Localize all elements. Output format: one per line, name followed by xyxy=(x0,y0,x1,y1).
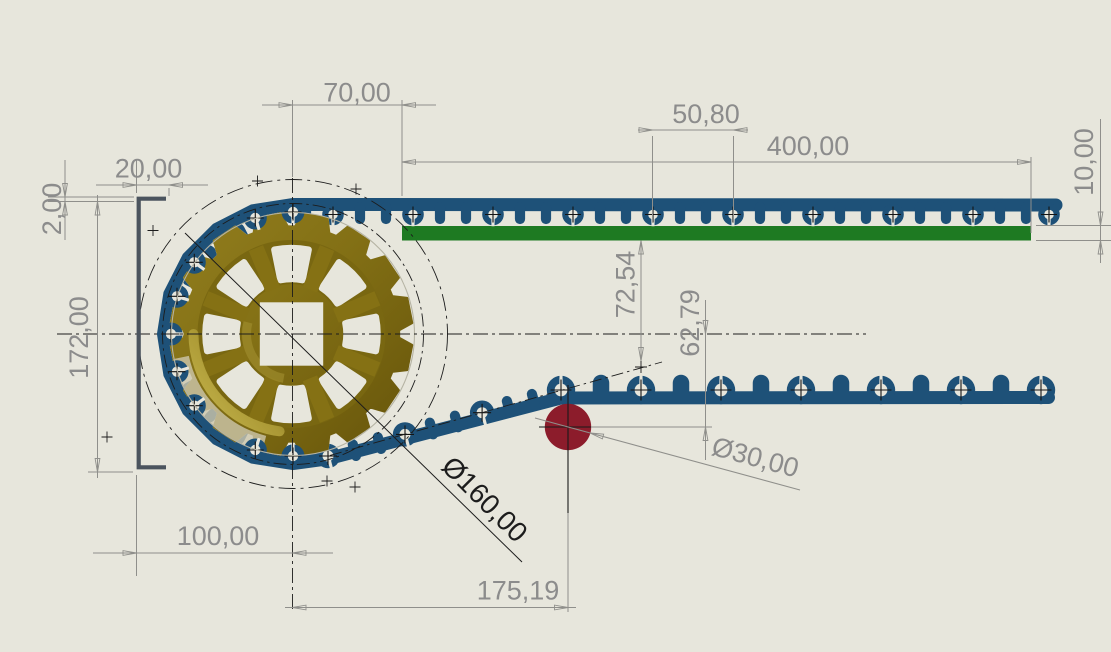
svg-text:70,00: 70,00 xyxy=(323,78,391,108)
svg-text:172,00: 172,00 xyxy=(64,296,94,379)
svg-text:62,79: 62,79 xyxy=(675,289,705,357)
svg-text:175,19: 175,19 xyxy=(477,576,560,606)
svg-text:20,00: 20,00 xyxy=(115,154,183,184)
svg-text:2,00: 2,00 xyxy=(37,183,67,236)
svg-text:72,54: 72,54 xyxy=(611,251,641,319)
svg-text:10,00: 10,00 xyxy=(1069,128,1099,196)
svg-text:50,80: 50,80 xyxy=(672,99,740,129)
svg-text:400,00: 400,00 xyxy=(767,131,850,161)
svg-text:100,00: 100,00 xyxy=(177,521,260,551)
